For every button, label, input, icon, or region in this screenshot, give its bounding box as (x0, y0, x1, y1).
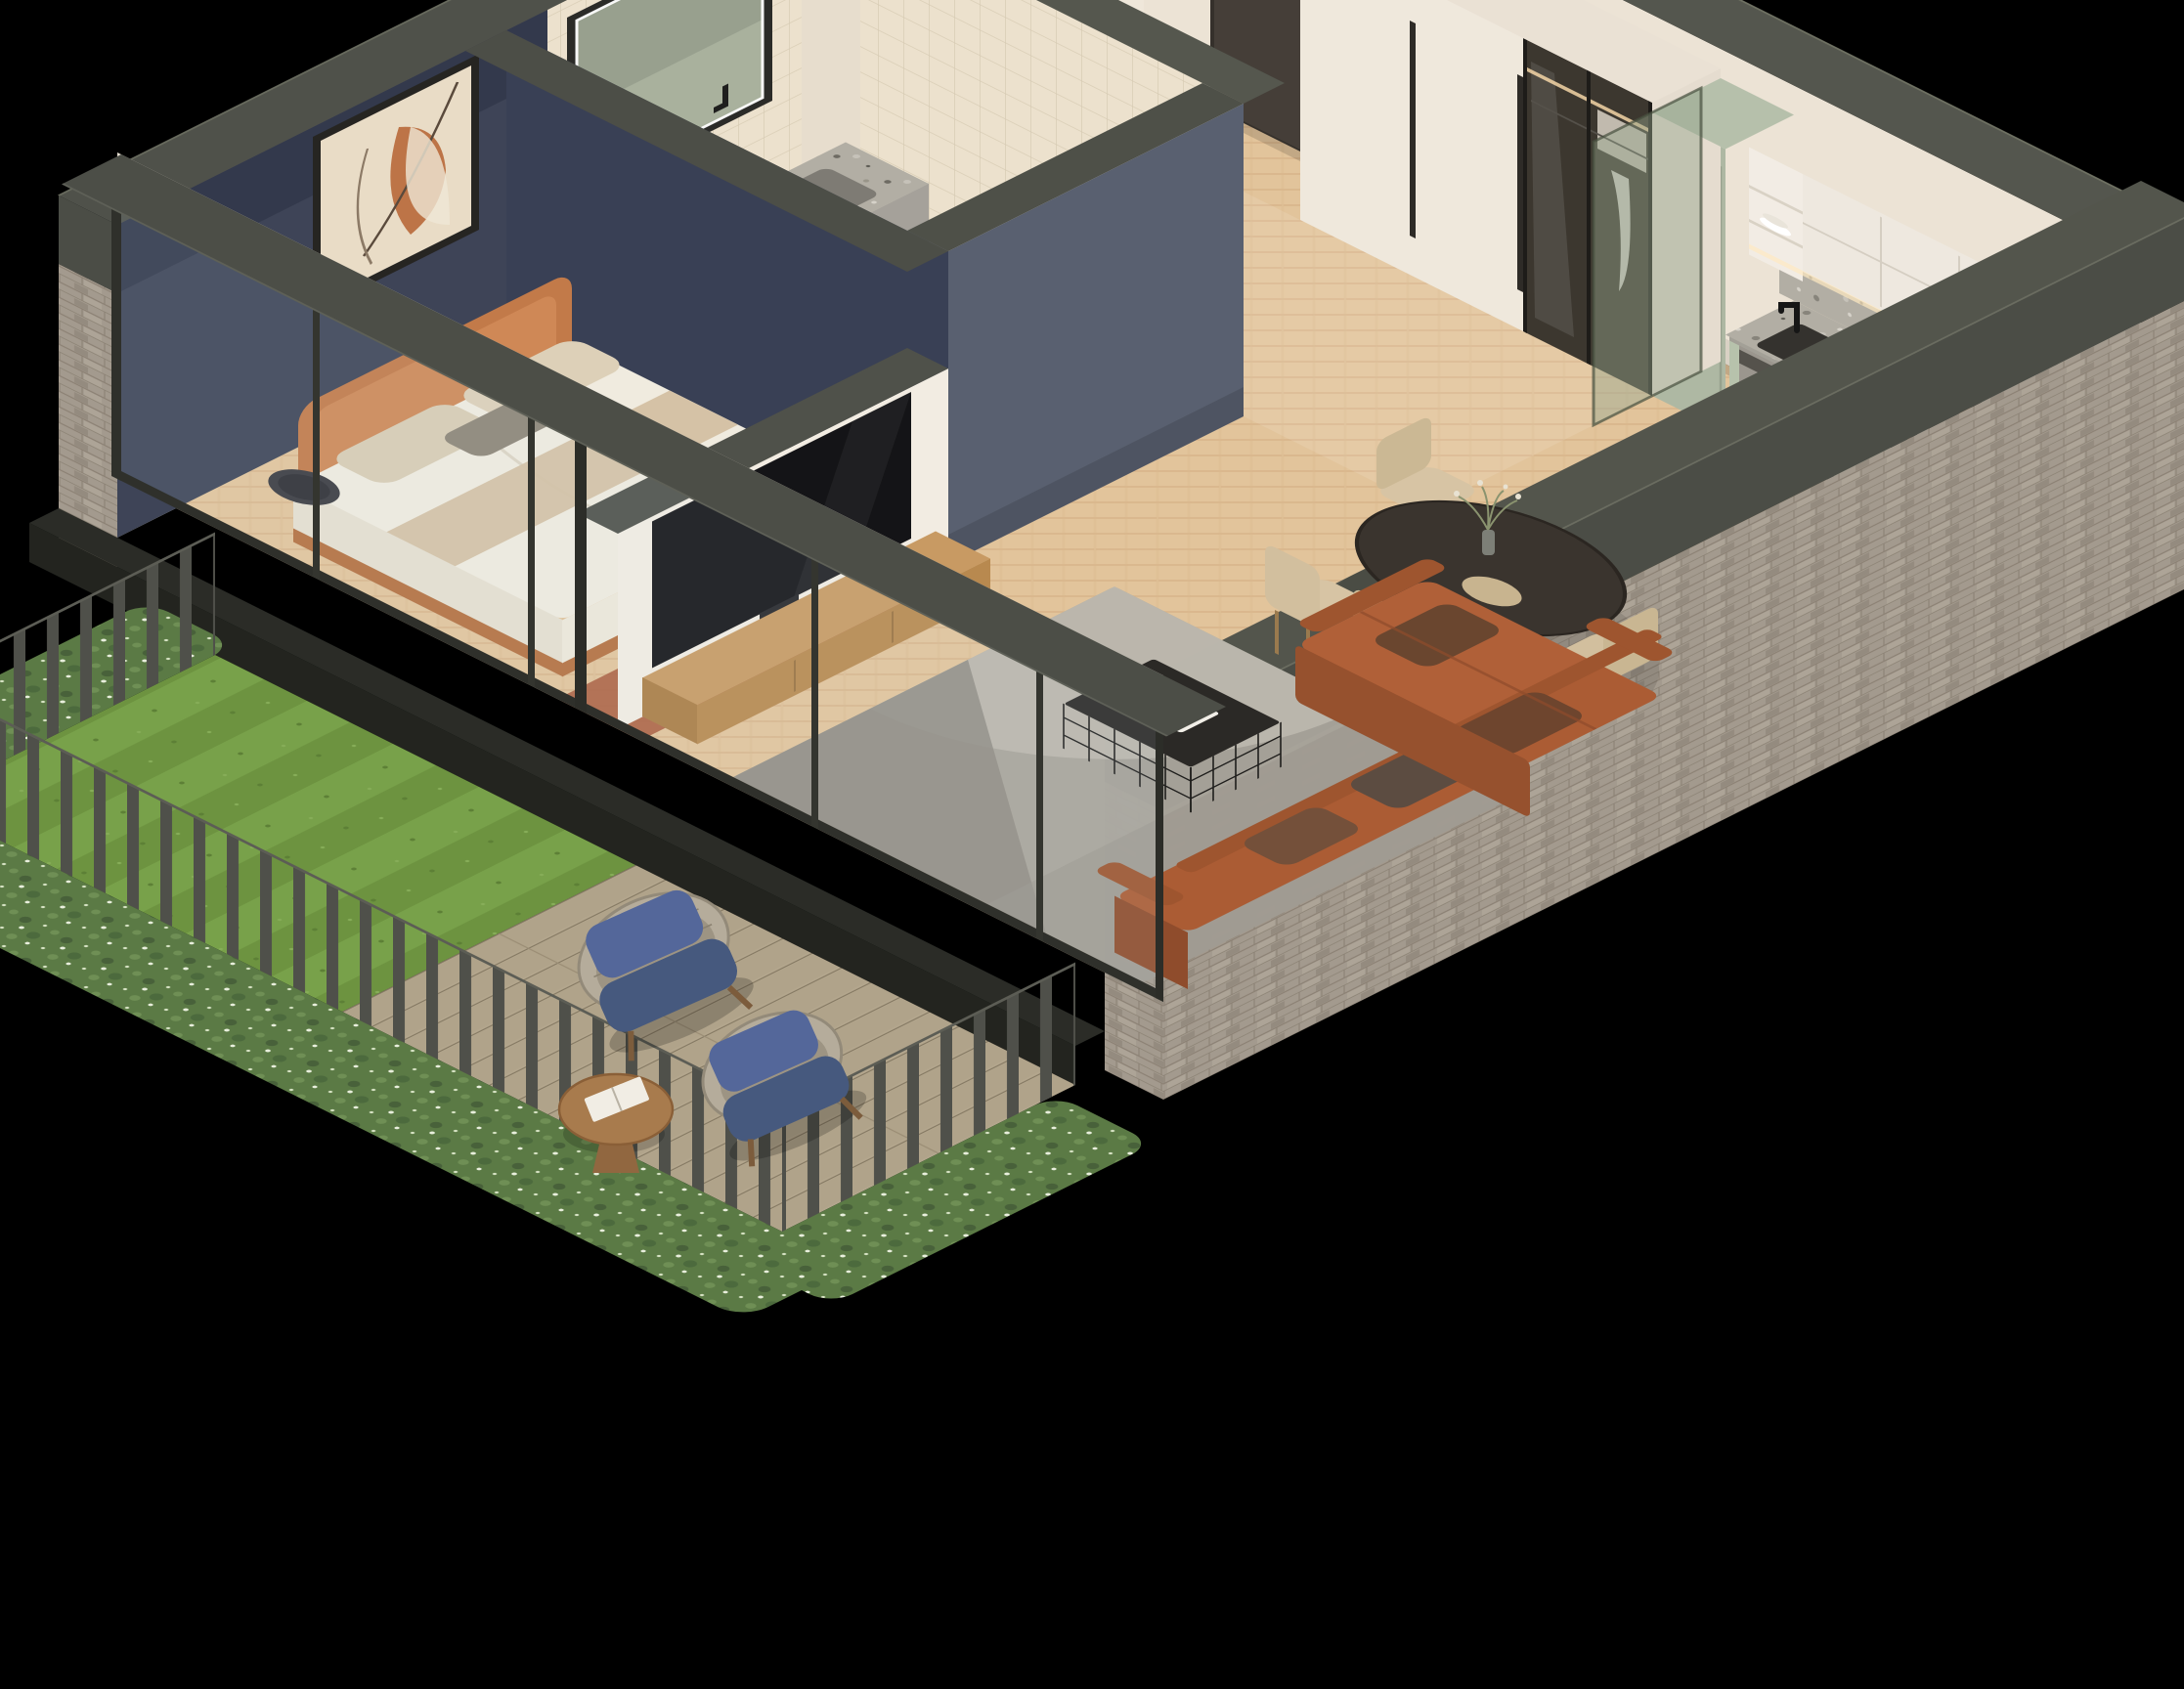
apartment-isometric-render (0, 0, 2184, 1689)
glass-mullion (313, 287, 320, 581)
render-canvas (0, 0, 2184, 1689)
glass-mullion (575, 418, 587, 714)
glass-mullion (528, 395, 535, 688)
wardrobe-handle (1517, 74, 1523, 292)
green-glass-partition (1594, 88, 1701, 425)
glass-mullion (811, 537, 818, 830)
glass-mullion (1036, 649, 1043, 942)
wardrobe-handle (1410, 21, 1416, 238)
